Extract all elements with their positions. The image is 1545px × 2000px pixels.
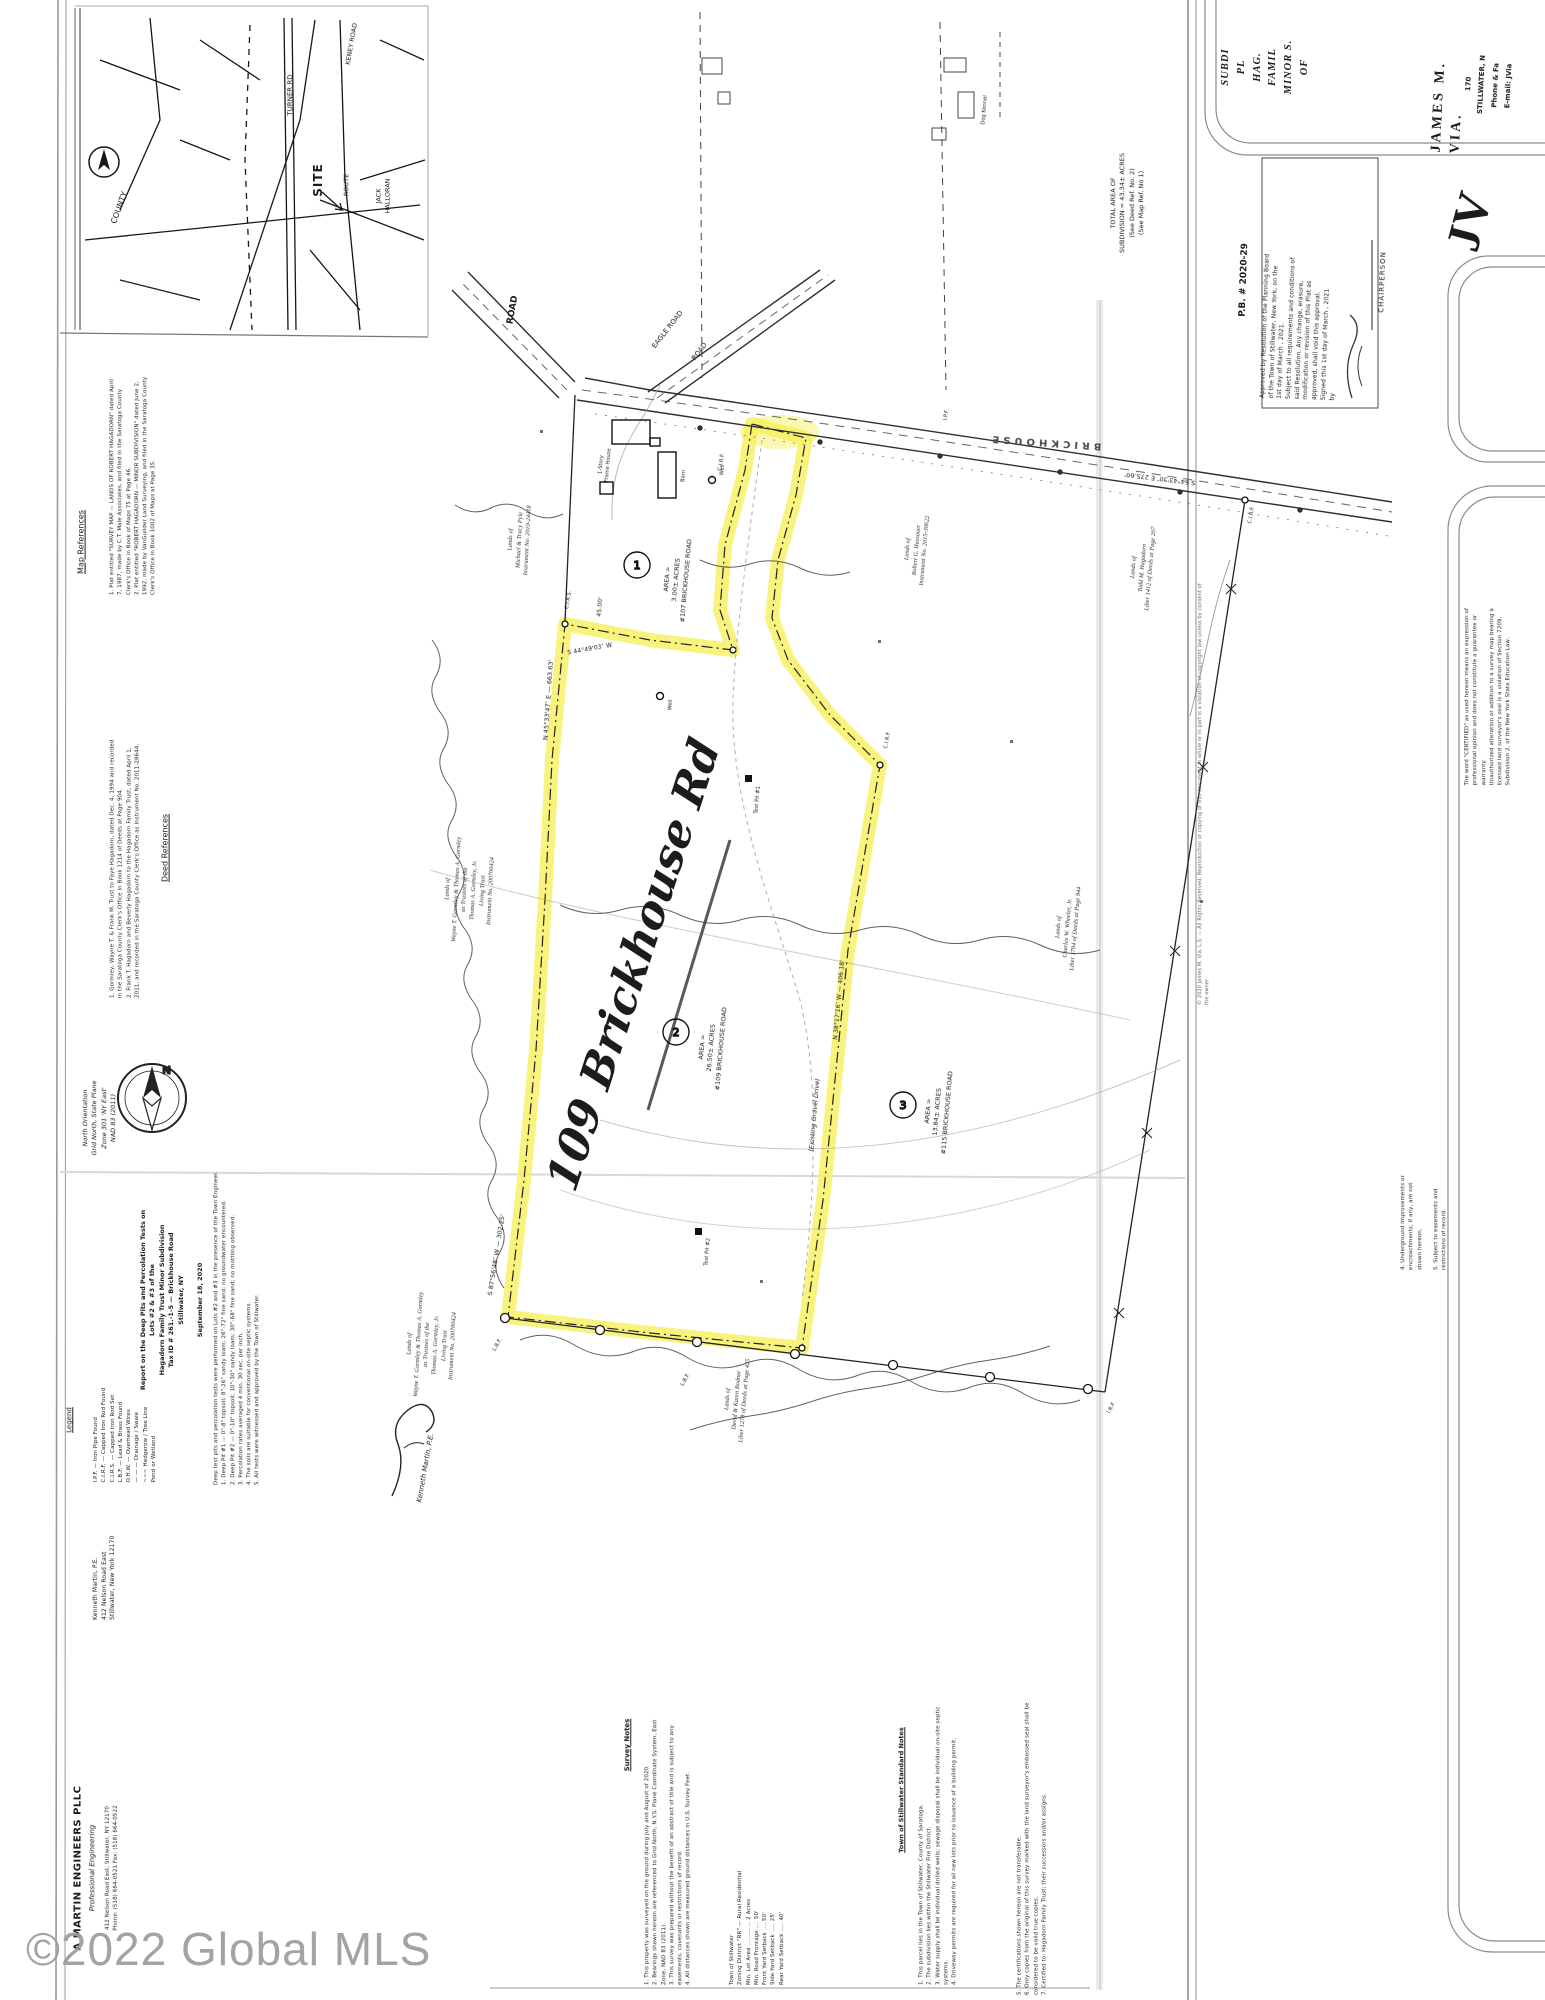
engineer-address-block: Kenneth Martin, P.E. 412 Nelson Road Eas… [92, 1500, 118, 1620]
perc-report-title: Report on the Deep Pits and Percolation … [139, 1155, 205, 1445]
frontage-distance-label: 45.00' [596, 597, 606, 617]
stillwater-notes-body: 1. This parcel lies in the Town of Still… [917, 1705, 958, 1985]
right-margin-notes: 4. Underground improvements or encroachm… [1399, 1100, 1449, 1270]
stillwater-notes-heading: Town of Stillwater Standard Notes [897, 1685, 906, 1895]
map-references-heading: Map References [77, 510, 88, 574]
mls-watermark: ©2022 Global MLS [26, 1922, 431, 1976]
title-block-frames [1205, 0, 1545, 1952]
survey-notes-heading: Survey Notes [623, 1719, 632, 1772]
north-of-road-details [700, 12, 1000, 390]
firm-subtitle: Professional Engineering [88, 1825, 97, 1912]
deed-references-heading: Deed References [161, 814, 172, 882]
copyright-strip: © 2020 James M. Via, L.S. — All Rights R… [1197, 575, 1211, 1005]
north-orientation-note: North Orientation Grid North, State Plan… [81, 1058, 119, 1178]
lot2-number: 2 [673, 1026, 680, 1039]
approval-statement: Approved by Resolution of the Planning B… [1259, 163, 1345, 401]
surveyor-contact-lines: 170 STILLWATER, N Phone & Fa E-mail: JVi… [1457, 0, 1521, 186]
plat-book-number: P.B. # 2020-29 [1237, 243, 1252, 317]
inset-halloran-label: JACK HALLORAN [375, 178, 394, 213]
scanned-survey-plat-page: { "wm": "©2022 Global MLS", "ins": { "si… [0, 0, 1545, 2000]
owner-label-gormley-south: Lands of Wayne T. Gormley & Thomas A. Go… [402, 1259, 463, 1431]
plat-title: SUBDI PL HAG. FAMIL MINOR S. OF [1218, 17, 1313, 117]
map-references-body: 1. Plat entitled "SURVEY MAP — LANDS OF … [108, 375, 158, 595]
total-area-note: TOTAL AREA OF SUBDIVISION = 43.34± ACRES… [1109, 138, 1147, 268]
perc-report-body: Deep test pits and percolation tests wer… [212, 1155, 262, 1485]
inset-route-label: ROUTE [342, 174, 351, 196]
deed-references-body: 1. Gormley, Wayne T. & Frank M. Trust to… [109, 738, 142, 998]
inset-compass-icon [89, 147, 119, 177]
treeline-squiggles [432, 504, 1230, 1430]
owner-label-gormley-west: Lands of Wayne T. Gormley & Thomas A. Go… [440, 804, 501, 976]
barn-label: Barn [680, 470, 688, 483]
yellow-highlight-parcel [508, 415, 880, 1348]
inset-site-label: SITE [310, 163, 326, 197]
inset-location-map [60, 6, 428, 337]
lot1-number: 1 [634, 559, 641, 572]
lot3-number: 3 [900, 1099, 907, 1112]
survey-notes-body: 1. This property was surveyed on the gro… [643, 1705, 693, 1985]
zoning-table: Town of Stillwater Zoning District "RR" … [728, 1705, 786, 1985]
north-compass-icon: N [118, 1064, 186, 1132]
inset-turner-rd-label: TURNER RD [286, 74, 295, 115]
legend-heading: Legend [65, 1407, 74, 1433]
lot1-buildings [600, 420, 716, 700]
well-label-2: Well [667, 699, 675, 710]
certification-notes-body: 5. The certifications shown hereon are n… [1016, 1695, 1049, 1995]
compass-north-letter: N [162, 1064, 171, 1077]
certification-legal-text: The word "CERTIFIED" as used hereon mean… [1463, 591, 1513, 786]
